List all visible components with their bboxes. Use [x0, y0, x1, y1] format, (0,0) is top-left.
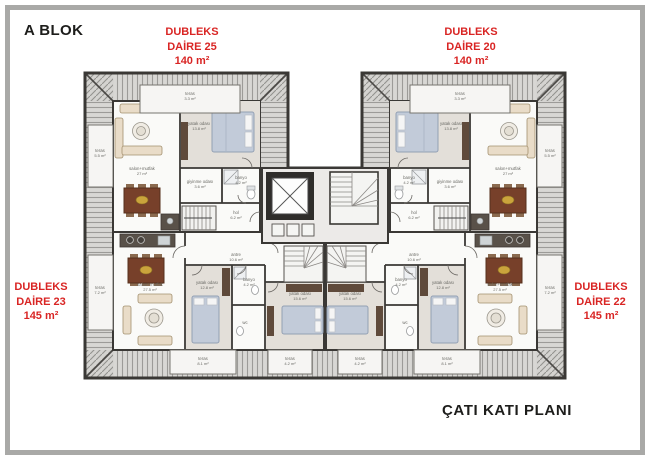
room-label: teras7.2 m² — [544, 285, 556, 295]
room-label: teras7.2 m² — [94, 285, 106, 295]
apartment-unit: DAİRE 23 — [14, 295, 67, 310]
bed-2 — [282, 306, 323, 334]
room-label: teras8.1 m² — [441, 356, 453, 366]
room-label: teras3.3 m² — [184, 91, 196, 101]
apartment-label-22: DUBLEKS DAİRE 22 145 m² — [574, 280, 627, 324]
apartment-label-23: DUBLEKS DAİRE 23 145 m² — [14, 280, 67, 324]
central-core — [262, 168, 388, 243]
utility-closets — [272, 224, 314, 236]
floor-plan-drawing: teras3.3 m²teras5.5 m²salon+mutfak27 m²y… — [0, 0, 650, 460]
elevator-shaft — [266, 172, 314, 220]
wc-toilet — [237, 327, 244, 336]
room-label: teras5.5 m² — [94, 148, 106, 158]
apartment-unit: DAİRE 22 — [574, 295, 627, 310]
apartment-type: DUBLEKS — [574, 280, 627, 295]
roof-band-gap-left — [260, 101, 288, 168]
apartment-area: 140 m² — [444, 54, 497, 69]
apartment-unit: DAİRE 25 — [165, 40, 218, 55]
plan-title: ÇATI KATI PLANI — [442, 402, 572, 419]
apartment-label-20: DUBLEKS DAİRE 20 140 m² — [444, 25, 497, 69]
bed-1 — [192, 296, 219, 343]
floor-plan-page: teras3.3 m²teras5.5 m²salon+mutfak27 m²y… — [0, 0, 650, 460]
apartment-type: DUBLEKS — [165, 25, 218, 40]
apartment-area: 140 m² — [165, 54, 218, 69]
room-label: wc — [402, 320, 408, 325]
room-label: teras5.5 m² — [544, 148, 556, 158]
apartment-area: 145 m² — [574, 309, 627, 324]
kitchen-counter — [120, 234, 175, 247]
main-staircase — [330, 172, 378, 224]
apartment-type: DUBLEKS — [444, 25, 497, 40]
room-label: banyo4.2 m² — [243, 277, 255, 287]
room-label: banyo4.2 m² — [403, 175, 415, 185]
duplex-stair — [182, 206, 216, 230]
kitchen-counter — [161, 214, 179, 230]
apartment-type: DUBLEKS — [14, 280, 67, 295]
block-title: A BLOK — [24, 22, 83, 39]
wardrobe-1 — [222, 268, 230, 296]
room-label: banyo4.2 m² — [395, 277, 407, 287]
wardrobe-3 — [267, 306, 274, 336]
room-label: teras8.1 m² — [197, 356, 209, 366]
apartment-area: 145 m² — [14, 309, 67, 324]
duplex-fan-stair — [284, 246, 323, 282]
apartment-unit: DAİRE 20 — [444, 40, 497, 55]
wardrobe — [181, 122, 188, 160]
room-label: teras4.2 m² — [354, 356, 366, 366]
dining-table — [124, 184, 160, 217]
apartment-label-25: DUBLEKS DAİRE 25 140 m² — [165, 25, 218, 69]
room-label: teras3.3 m² — [454, 91, 466, 101]
room-label: banyo4.2 m² — [235, 175, 247, 185]
roof-band-gap-right — [362, 101, 390, 168]
room-label: wc — [242, 320, 248, 325]
party-wall — [323, 243, 327, 350]
bed — [212, 112, 254, 152]
room-label: teras4.2 m² — [284, 356, 296, 366]
